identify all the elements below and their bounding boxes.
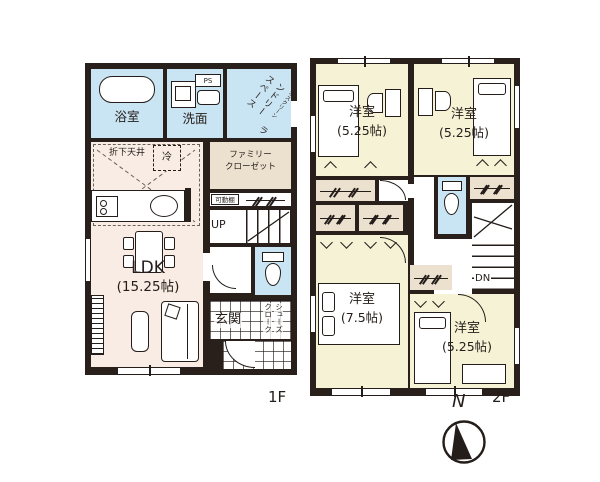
hanger-pipe	[363, 218, 399, 219]
room-family-closet: ファミリー クローゼット	[210, 142, 291, 189]
compass-north-label: N	[452, 392, 465, 413]
closet-door-mark	[476, 159, 489, 172]
room-ldk-label: LDK	[93, 259, 203, 279]
bedroom-sw-bottom-window	[332, 388, 390, 396]
toilet-bowl	[265, 263, 281, 286]
ldk-hall-opening	[203, 253, 210, 281]
movable-shelf-label: 可動棚	[212, 197, 238, 204]
bedroom-ne-size: (5.25帖)	[414, 126, 514, 140]
room-washroom-label: 洗面	[167, 112, 223, 126]
washing-machine	[171, 81, 196, 108]
dropped-ceiling-label: 折下天井	[107, 148, 147, 158]
entrance-door-arc	[225, 341, 255, 368]
closet-door-mark	[364, 161, 377, 174]
stove-burner	[100, 208, 107, 215]
bedroom-sw-label: 洋室	[316, 293, 408, 308]
room-ldk: 折下天井 冷 LDK (15.25帖)	[91, 142, 203, 367]
pipe-space-box: PS	[195, 74, 221, 87]
ldk-bottom-window	[118, 367, 180, 375]
kitchen-sink	[150, 195, 178, 217]
pillow	[478, 83, 506, 95]
bedroom-sw-size: (7.5帖)	[316, 311, 408, 325]
hall-opening	[408, 184, 414, 198]
closet-door-mark	[494, 159, 507, 172]
laundry-space-label: ホスクリーン ランドリー スペース	[220, 63, 298, 142]
room-entrance: 玄関 シューズ クローク	[210, 299, 291, 339]
tv-board	[91, 295, 104, 355]
closet-door-mark	[432, 295, 445, 308]
bed	[318, 85, 359, 157]
laundry-door-opening	[291, 101, 297, 127]
room-bedroom-nw: 洋室 (5.25帖)	[316, 64, 408, 176]
bedroom-ne-right-window	[514, 86, 520, 128]
closet-ne	[470, 177, 514, 199]
stair-diagonal	[210, 210, 291, 243]
movable-shelf-box: 可動棚	[211, 194, 239, 205]
hall-corridor	[414, 177, 434, 265]
room-ldk-size: (15.25帖)	[93, 280, 203, 296]
kitchen-counter	[91, 190, 185, 222]
room-bath-label: 浴室	[91, 110, 163, 124]
bedroom-nw-label: 洋室	[316, 106, 408, 121]
shoe-closet-label-2: クローク	[263, 303, 272, 339]
hanger-pipe	[320, 218, 351, 219]
closet-se	[410, 265, 452, 290]
hanger-pipe	[414, 278, 448, 279]
bedroom-nw-size: (5.25帖)	[316, 124, 408, 138]
room-washroom: PS 洗面	[167, 69, 223, 138]
room-bedroom-ne: 洋室 (5.25帖)	[414, 64, 514, 175]
sofa-cushion	[164, 303, 180, 319]
stairs-up: UP	[210, 210, 291, 243]
toilet-tank	[442, 181, 462, 191]
desk	[462, 364, 506, 384]
room-laundry-space: ホスクリーン ランドリー スペース	[227, 69, 291, 138]
fridge-box: 冷	[153, 145, 181, 171]
bedroom-nw-door-arc	[380, 180, 406, 200]
fridge-label: 冷	[154, 152, 180, 164]
entrance-label: 玄関	[214, 313, 242, 328]
entrance-porch	[223, 341, 291, 369]
closet-door-mark	[324, 161, 337, 174]
closet-sw-2	[359, 205, 403, 231]
room-toilet-2f	[438, 177, 466, 234]
pillow	[323, 90, 354, 102]
bedroom-sw-left-window	[310, 296, 316, 332]
bedroom-sw-door-arc	[380, 237, 406, 263]
hall-1f	[210, 247, 251, 293]
toilet-bowl	[444, 193, 459, 215]
counter-wall-stub	[185, 188, 191, 222]
low-table	[131, 311, 149, 352]
shoe-closet-label-1: シューズ	[274, 303, 283, 339]
hall-nook	[379, 180, 408, 201]
dining-chair	[164, 237, 175, 250]
closet-door-mark	[340, 236, 353, 249]
bedroom-ne-top-window	[442, 58, 494, 64]
room-bath: 浴室	[91, 69, 163, 138]
stove-burner	[100, 200, 107, 207]
closet-door-mark	[414, 295, 427, 308]
stair-diagonal	[472, 203, 514, 239]
movable-shelf-band: 可動棚	[210, 193, 291, 206]
bedroom-se-right-window	[514, 328, 520, 364]
dining-chair	[123, 237, 134, 250]
compass: N	[437, 392, 497, 472]
hall-door-arc	[212, 265, 236, 289]
floor-2-plan: 洋室 (5.25帖) 洋室 (5.25帖)	[310, 58, 520, 396]
bedroom-nw-top-window	[338, 58, 390, 64]
washing-machine-drum	[175, 86, 191, 101]
sofa	[161, 301, 199, 362]
stairs-down-label: DN	[474, 273, 491, 285]
bedroom-se-label: 洋室	[420, 322, 514, 337]
bedroom-se-door-arc	[458, 294, 486, 322]
bathtub	[99, 76, 155, 103]
closet-nw	[316, 180, 375, 201]
bedroom-nw-left-window	[310, 116, 316, 152]
room-toilet-1f	[255, 247, 291, 295]
pipe-space-label: PS	[196, 77, 220, 85]
hanger-pipe	[246, 200, 285, 201]
room-bedroom-sw: 洋室 (7.5帖)	[316, 235, 408, 388]
family-closet-label-2: クローゼット	[210, 163, 291, 173]
room-bedroom-se: 洋室 (5.25帖)	[410, 294, 514, 388]
stairs-down: DN	[472, 203, 514, 290]
closet-door-mark	[364, 236, 377, 249]
stove	[96, 196, 118, 217]
family-closet-label-1: ファミリー	[210, 151, 291, 161]
bedroom-se-size: (5.25帖)	[420, 340, 514, 354]
closet-door-mark	[320, 236, 333, 249]
floor-1-plan: 浴室 PS 洗面 ホスクリーン ランドリー スペース	[85, 63, 297, 375]
compass-icon	[437, 418, 493, 468]
floor-plan-canvas: 浴室 PS 洗面 ホスクリーン ランドリー スペース	[0, 0, 600, 482]
hanger-pipe	[320, 191, 371, 192]
ldk-left-window	[85, 239, 91, 281]
floor-1-label: 1F	[268, 389, 286, 406]
sofa-seat-line	[187, 304, 188, 359]
bedroom-ne-label: 洋室	[414, 108, 514, 123]
hanger-pipe	[474, 188, 510, 189]
wash-basin	[197, 90, 220, 105]
closet-sw-1	[316, 205, 355, 231]
toilet-tank	[262, 252, 284, 262]
